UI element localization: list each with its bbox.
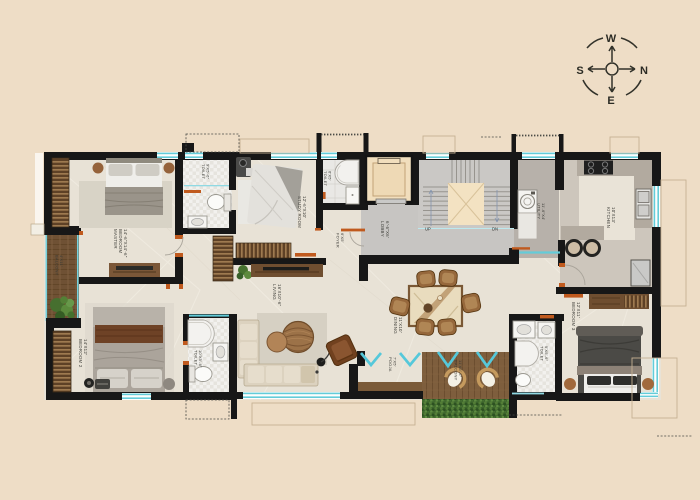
svg-text:DN: DN [492,227,498,232]
svg-text:DINING11'X10': DINING11'X10' [393,317,403,334]
svg-text:W: W [606,33,617,45]
svg-text:E: E [607,95,614,107]
svg-text:UTILITY11'-6"X4': UTILITY11'-6"X4' [537,203,547,220]
svg-text:S: S [576,65,583,77]
svg-text:UP: UP [425,227,431,232]
svg-text:N: N [640,65,648,77]
svg-text:LOBBY6'-6"X6': LOBBY6'-6"X6' [380,221,390,238]
svg-text:TOILET9'X5'-6": TOILET9'X5'-6" [201,164,211,180]
svg-text:TOILET9'X5'-6": TOILET9'X5'-6" [540,346,550,362]
